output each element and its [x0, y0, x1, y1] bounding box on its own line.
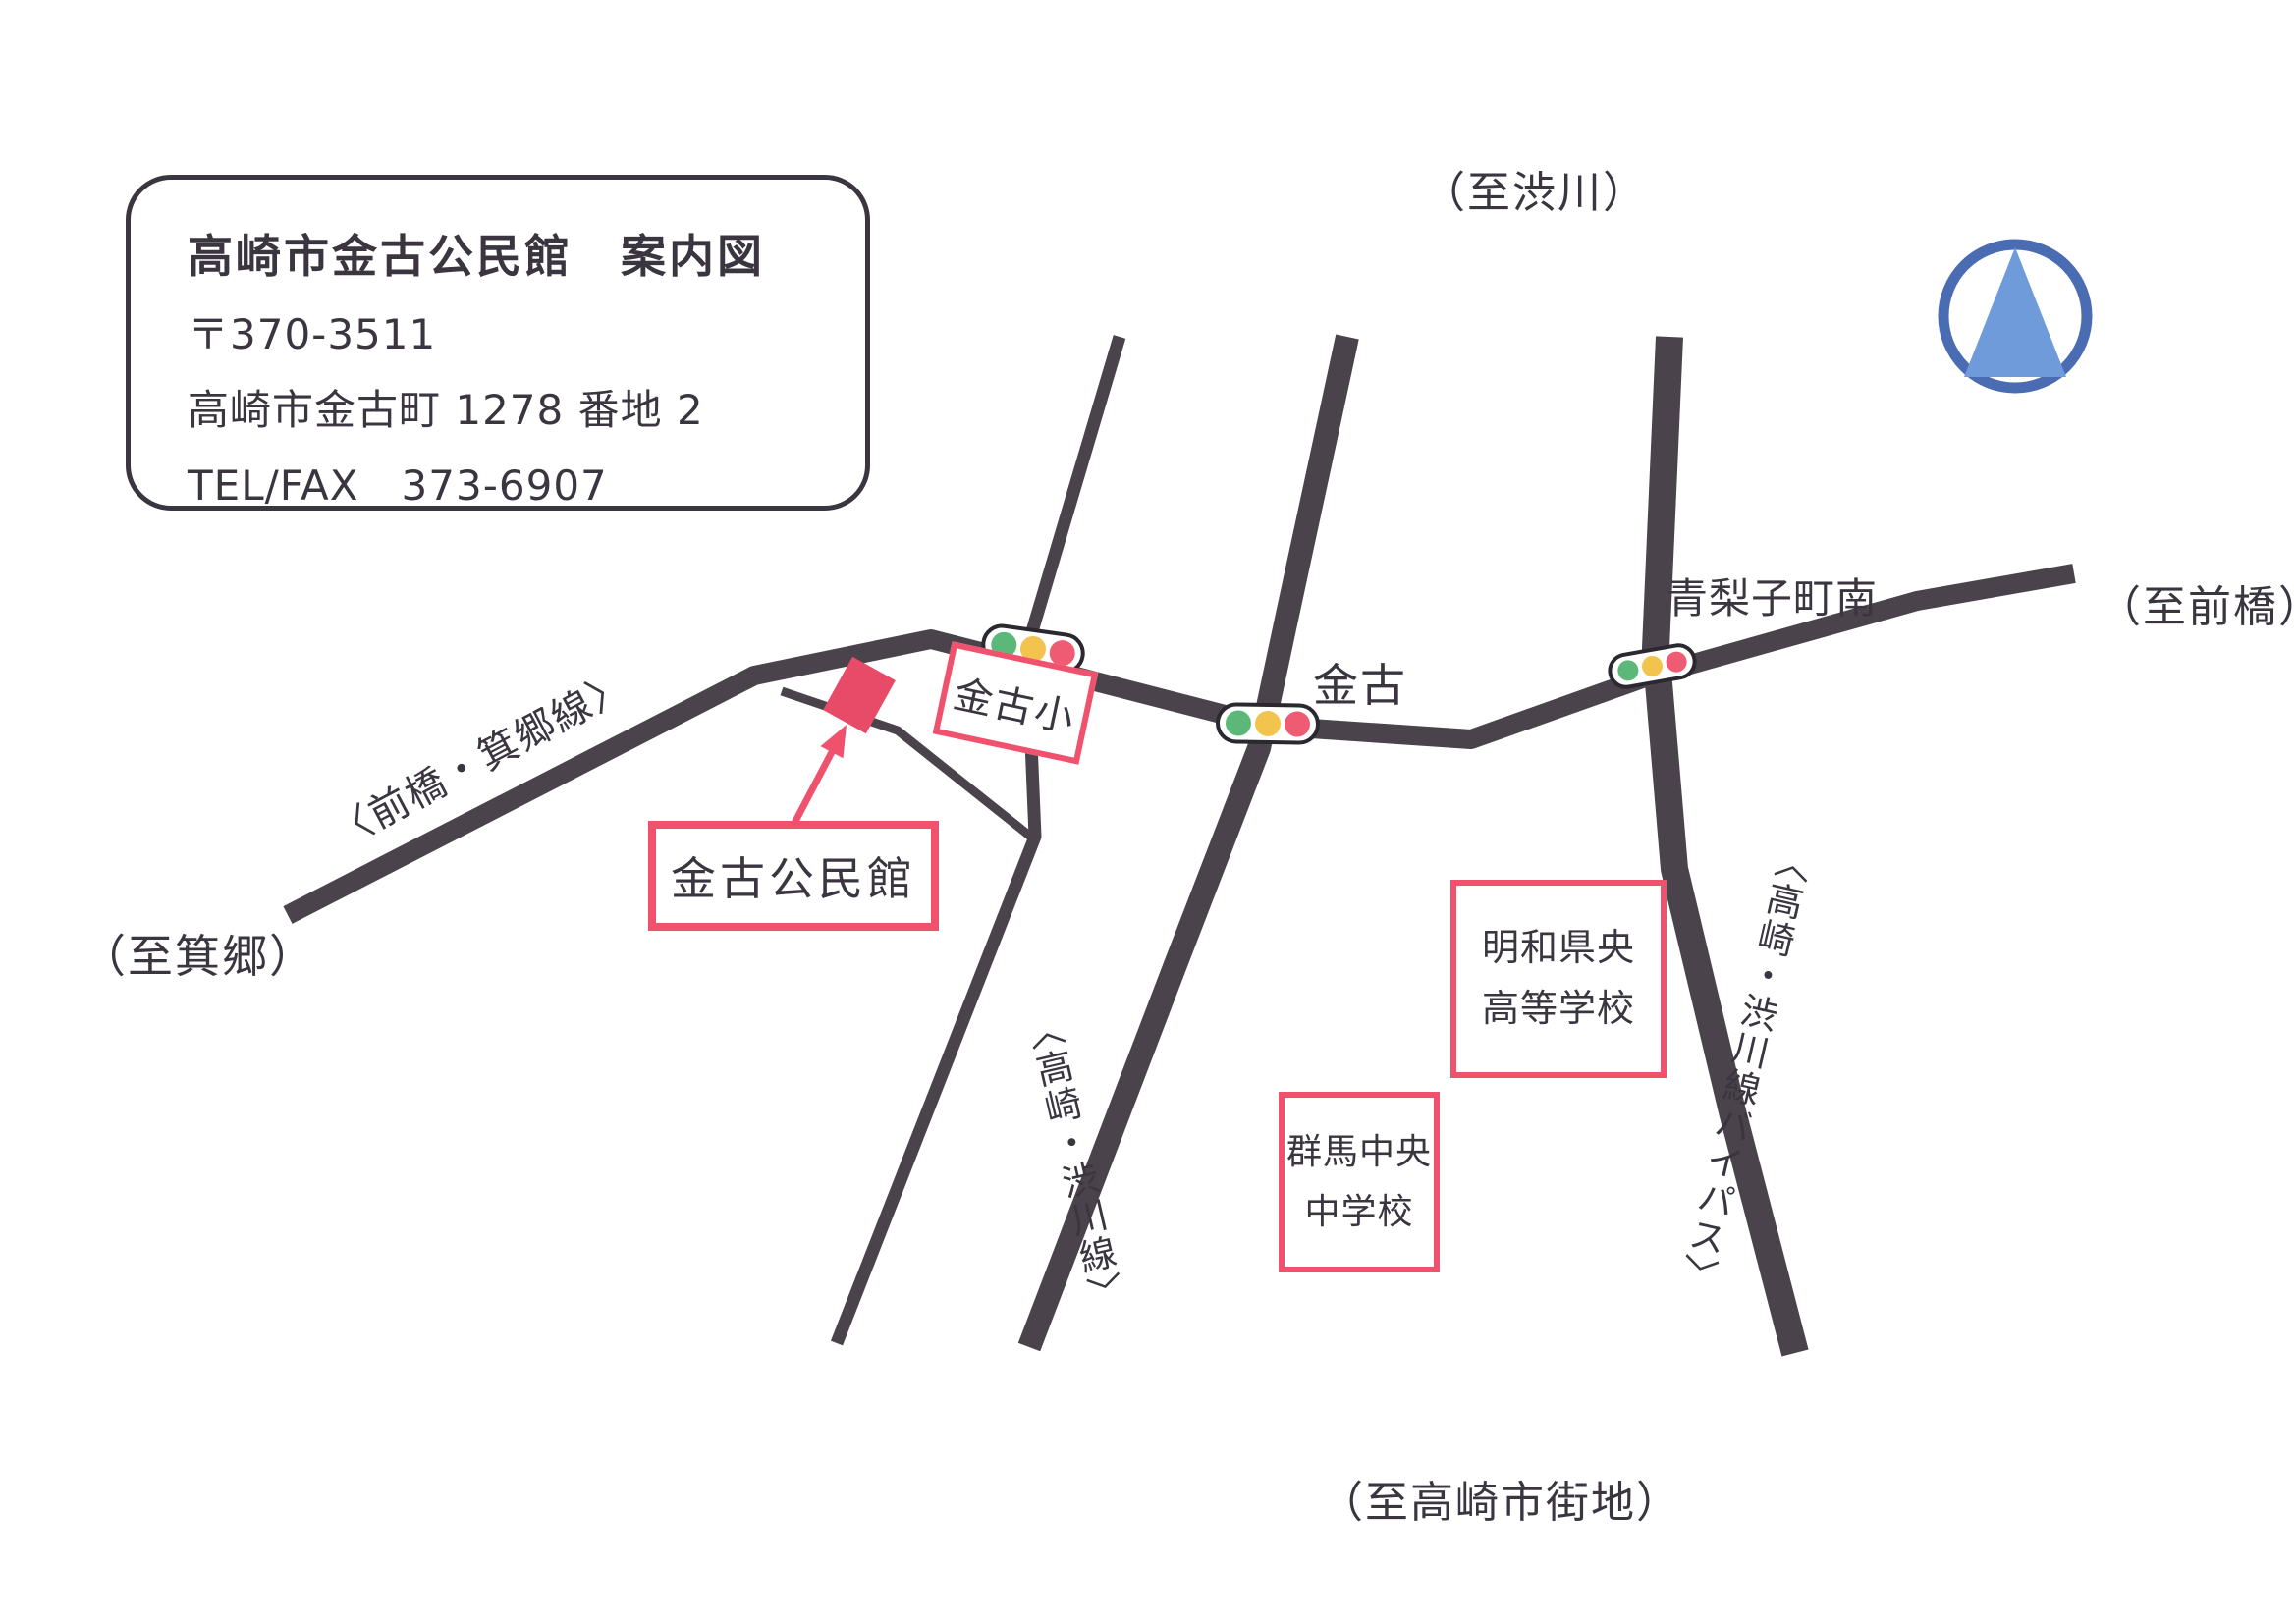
tel-fax: TEL/FAX 373-6907	[188, 453, 836, 513]
place-label-community-center: 金古公民館	[671, 843, 916, 908]
place-label-meiwa-line1: 明和県央	[1482, 918, 1635, 979]
traffic-light-red	[1285, 711, 1310, 736]
traffic-light-red	[1665, 650, 1688, 674]
direction-label-maebashi: （至前橋）	[2098, 571, 2296, 634]
place-box-meiwa-kenou-high-school: 明和県央 高等学校	[1450, 880, 1667, 1078]
intersection-label-kaneko: 金古	[1313, 650, 1407, 715]
postal-code: 〒370-3511	[188, 301, 836, 361]
traffic-light-amber	[1640, 654, 1664, 677]
traffic-light-icon-kaneko	[1216, 702, 1321, 745]
direction-label-takasaki-city: （至高崎市街地）	[1320, 1467, 1681, 1530]
north-arrow-icon	[1943, 244, 2087, 388]
intersection-label-aonashichou-minami: 青梨子町南	[1667, 566, 1878, 625]
place-label-gunma-line1: 群馬中央	[1286, 1122, 1432, 1182]
place-label-kaneko-elementary: 金古小	[949, 663, 1081, 744]
guide-map: 高崎市金古公民館 案内図 〒370-3511 高崎市金古町 1278 番地 2 …	[0, 0, 2296, 1622]
place-box-gunma-chuo-junior-high: 群馬中央 中学校	[1279, 1092, 1440, 1272]
traffic-light-green	[1226, 710, 1251, 735]
title-box: 高崎市金古公民館 案内図 〒370-3511 高崎市金古町 1278 番地 2 …	[126, 175, 870, 511]
direction-label-misato: （至箕郷）	[81, 921, 316, 986]
place-label-meiwa-line2: 高等学校	[1482, 979, 1635, 1040]
traffic-light-amber	[1255, 711, 1281, 736]
map-title: 高崎市金古公民館 案内図	[188, 221, 836, 286]
traffic-light-green	[1616, 659, 1640, 682]
place-label-gunma-line2: 中学校	[1304, 1182, 1413, 1242]
address: 高崎市金古町 1278 番地 2	[188, 377, 836, 437]
place-box-community-center: 金古公民館	[648, 821, 939, 931]
arrow-pointer-shaft	[792, 752, 832, 829]
direction-label-shibukawa: （至渋川）	[1422, 157, 1648, 220]
